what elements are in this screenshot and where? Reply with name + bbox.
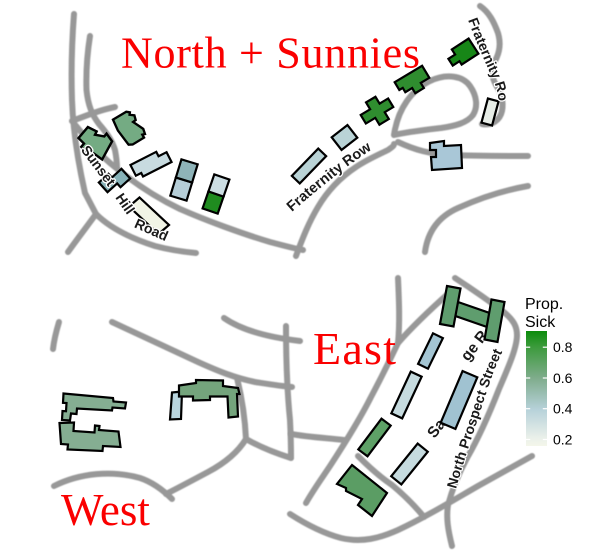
- svg-text:0.6: 0.6: [553, 370, 573, 386]
- svg-text:Sick: Sick: [525, 314, 556, 331]
- svg-text:West: West: [61, 485, 150, 535]
- svg-text:0.4: 0.4: [553, 401, 573, 417]
- svg-text:East: East: [313, 323, 396, 374]
- svg-text:0.2: 0.2: [553, 432, 573, 448]
- svg-text:North + Sunnies: North + Sunnies: [121, 29, 420, 78]
- svg-text:0.8: 0.8: [553, 339, 573, 355]
- svg-text:Prop.: Prop.: [525, 296, 563, 313]
